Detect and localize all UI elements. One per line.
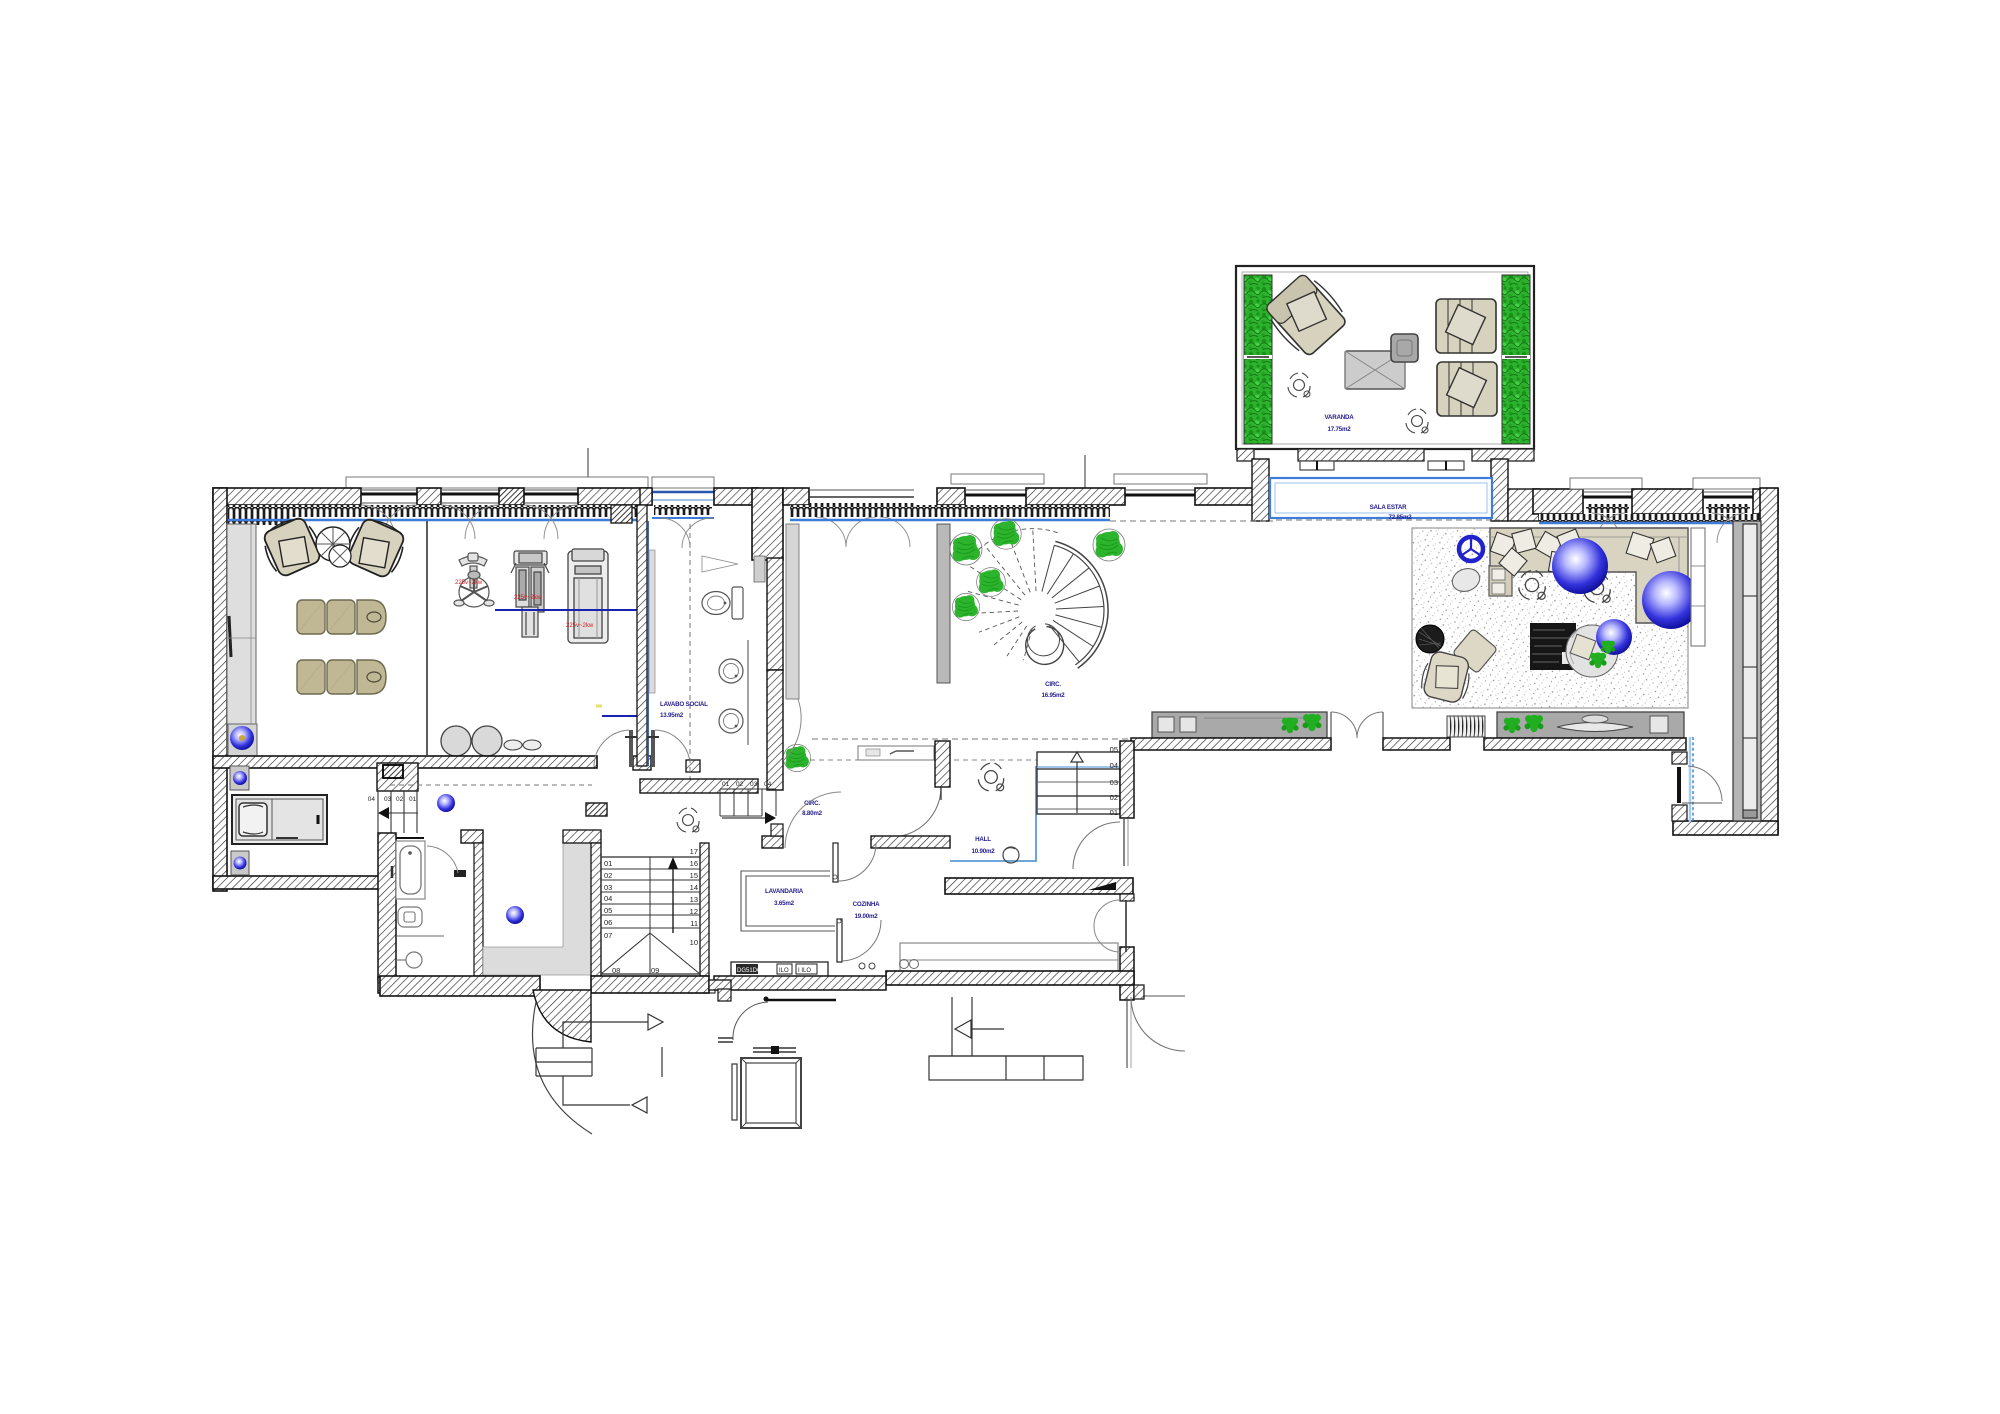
svg-text:04: 04 (1110, 761, 1118, 770)
svg-text:10: 10 (690, 938, 698, 947)
svg-text:05: 05 (604, 906, 612, 915)
svg-text:03: 03 (604, 883, 612, 892)
svg-text:11: 11 (690, 919, 698, 928)
svg-text:04: 04 (764, 781, 772, 788)
svg-text:I ILO: I ILO (798, 968, 811, 974)
svg-text:10.90m2: 10.90m2 (971, 848, 995, 855)
svg-text:3.65m2: 3.65m2 (774, 900, 795, 907)
svg-text:01: 01 (722, 781, 730, 788)
svg-text:19.00m2: 19.00m2 (854, 913, 878, 920)
svg-text:04: 04 (368, 796, 376, 803)
svg-text:13: 13 (690, 895, 698, 904)
svg-text:CIRC.: CIRC. (1045, 681, 1061, 688)
svg-text:08: 08 (612, 966, 620, 975)
svg-text:02: 02 (736, 781, 744, 788)
svg-text:LAVABO SOCIAL: LAVABO SOCIAL (660, 701, 708, 708)
svg-text:17: 17 (690, 847, 698, 856)
svg-text:COZINHA: COZINHA (853, 901, 881, 908)
svg-text:07: 07 (604, 931, 612, 940)
svg-text:05: 05 (1110, 745, 1118, 754)
svg-text:SALA ESTAR: SALA ESTAR (1370, 504, 1408, 511)
svg-text:225v~2kw: 225v~2kw (566, 623, 594, 629)
svg-text:03: 03 (384, 796, 392, 803)
svg-text:17.75m2: 17.75m2 (1327, 426, 1351, 433)
svg-text:VARANDA: VARANDA (1324, 414, 1354, 421)
svg-text:01: 01 (1110, 808, 1118, 817)
svg-text:8.80m2: 8.80m2 (802, 810, 823, 817)
svg-text:09: 09 (651, 966, 659, 975)
svg-text:16: 16 (690, 859, 698, 868)
svg-text:06: 06 (604, 918, 612, 927)
svg-text:12: 12 (690, 907, 698, 916)
svg-text:LAVANDARIA: LAVANDARIA (765, 888, 804, 895)
svg-text:03: 03 (1110, 778, 1118, 787)
svg-text:DG51DGA: DG51DGA (737, 968, 766, 974)
svg-text:15: 15 (690, 871, 698, 880)
svg-text:02: 02 (396, 796, 404, 803)
svg-text:225v~2kw: 225v~2kw (455, 580, 483, 586)
svg-text:03: 03 (750, 781, 758, 788)
svg-text:01: 01 (409, 796, 417, 803)
svg-text:HALL: HALL (975, 836, 991, 843)
svg-text:04: 04 (604, 894, 612, 903)
svg-text:14: 14 (690, 883, 698, 892)
svg-text:01: 01 (604, 859, 612, 868)
svg-text:16.95m2: 16.95m2 (1041, 692, 1065, 699)
svg-text:13.95m2: 13.95m2 (660, 712, 684, 719)
svg-text:02: 02 (604, 871, 612, 880)
svg-text:72.85m2: 72.85m2 (1388, 514, 1412, 521)
svg-text:02: 02 (1110, 793, 1118, 802)
svg-text:ILO: ILO (779, 968, 789, 974)
svg-text:225v~2kw: 225v~2kw (514, 595, 542, 601)
